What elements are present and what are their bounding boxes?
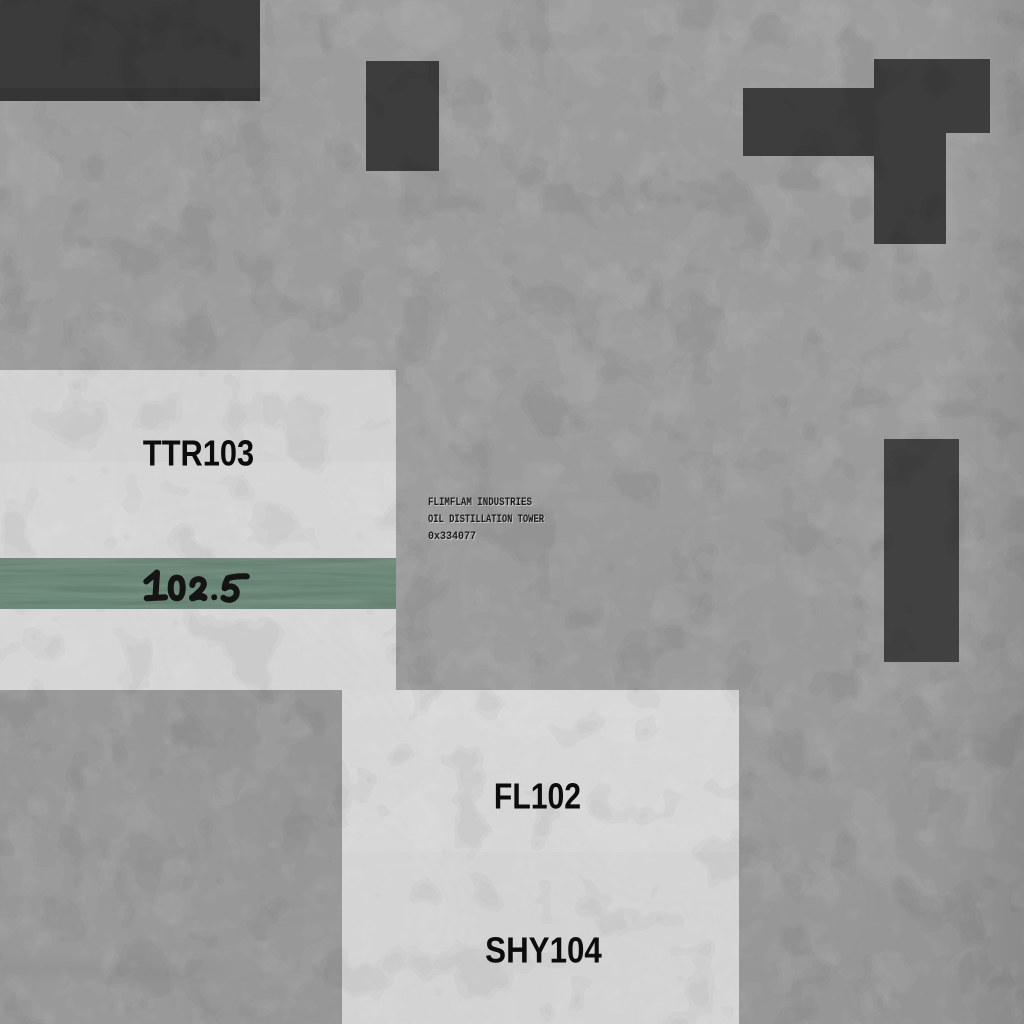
svg-text:TTR103: TTR103 — [143, 434, 254, 474]
svg-text:OIL DISTILLATION TOWER: OIL DISTILLATION TOWER — [428, 514, 544, 526]
svg-text:0x334077: 0x334077 — [428, 531, 476, 543]
svg-text:FL102: FL102 — [494, 777, 581, 817]
svg-text:FLIMFLAM INDUSTRIES: FLIMFLAM INDUSTRIES — [428, 497, 532, 509]
svg-text:SHY104: SHY104 — [485, 930, 602, 971]
